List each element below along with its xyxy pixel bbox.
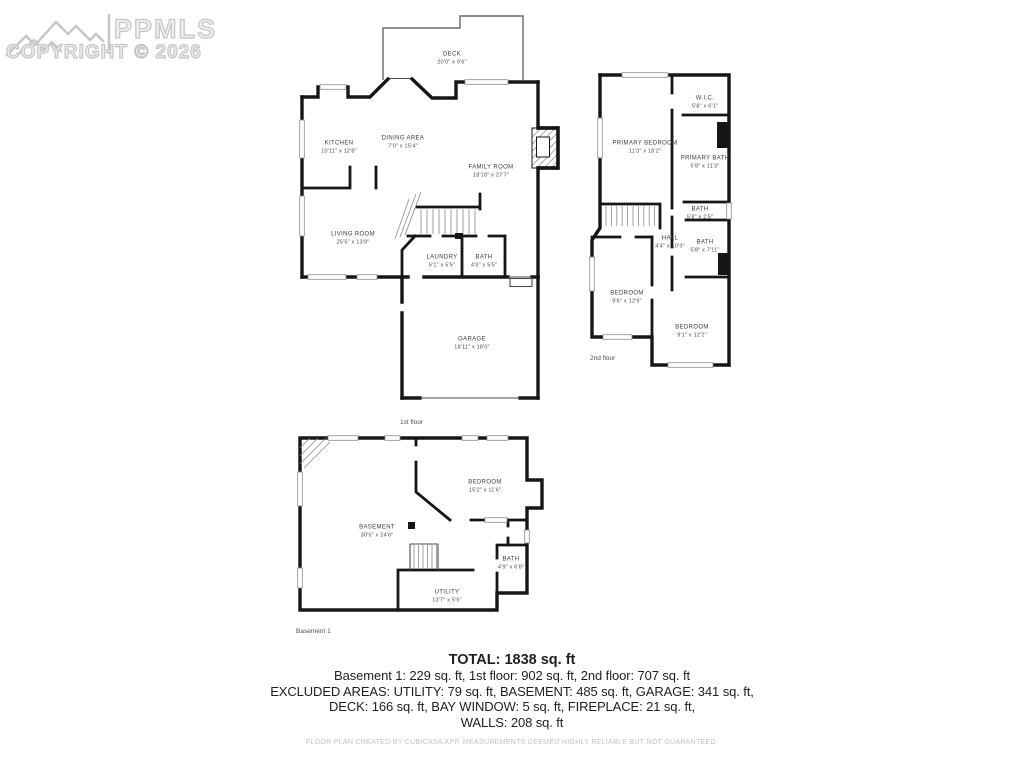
floor-areas-line: Basement 1: 229 sq. ft, 1st floor: 902 s… xyxy=(0,668,1024,684)
support-post xyxy=(408,522,415,529)
watermark-brand: PPMLS xyxy=(114,14,217,45)
basement-floor-plan xyxy=(290,430,550,645)
room-label-hall: HALL 4'4" x 10'3" xyxy=(655,235,685,249)
ppmls-watermark: PPMLS COPYRIGHT © 2026 xyxy=(4,4,234,66)
entry-stoop xyxy=(510,279,532,287)
room-label-kitchen: KITCHEN 10'11" x 12'8" xyxy=(321,140,357,154)
room-label-wic: W.I.C. 5'8" x 6'1" xyxy=(692,95,718,109)
room-label-living-room: LIVING ROOM 25'5" x 13'9" xyxy=(331,231,375,245)
room-label-utility: UTILITY 13'7" x 5'5" xyxy=(432,589,462,603)
room-label-bedroom-right: BEDROOM 9'1" x 12'2" xyxy=(675,324,708,338)
second-floor-plan xyxy=(580,60,750,380)
deck-outline xyxy=(383,16,523,80)
staircase xyxy=(606,206,655,226)
room-label-primary-bath: PRIMARY BATH 5'8" x 11'3" xyxy=(681,155,730,169)
excluded-areas-line-2: DECK: 166 sq. ft, BAY WINDOW: 5 sq. ft, … xyxy=(0,699,1024,715)
room-label-bath-small: BATH 5'8" x 2'5" xyxy=(687,206,713,220)
room-label-laundry: LAUNDRY 6'1" x 5'5" xyxy=(426,254,457,268)
room-label-basement-bath: BATH 4'9" x 6'8" xyxy=(498,556,524,570)
staircase xyxy=(395,192,475,239)
floor-plan-page: PPMLS COPYRIGHT © 2026 xyxy=(0,0,1024,767)
room-label-bath-first: BATH 4'9" x 5'5" xyxy=(471,254,497,268)
room-label-primary-bedroom: PRIMARY BEDROOM 11'3" x 18'2" xyxy=(612,140,677,154)
room-label-bath-second: BATH 5'8" x 7'11" xyxy=(690,239,719,253)
first-floor-tag: 1st floor xyxy=(400,419,423,426)
room-label-deck: DECK 20'0" x 9'6" xyxy=(437,51,467,65)
fireplace xyxy=(532,128,558,168)
total-area: TOTAL: 1838 sq. ft xyxy=(0,652,1024,668)
excluded-areas-line-1: EXCLUDED AREAS: UTILITY: 79 sq. ft, BASE… xyxy=(0,684,1024,700)
room-label-basement: BASEMENT 30'5" x 24'6" xyxy=(359,524,395,538)
staircase xyxy=(410,544,438,570)
room-label-garage: GARAGE 18'11" x 18'0" xyxy=(454,336,490,350)
under-stair-hatch xyxy=(300,438,330,468)
room-label-family-room: FAMILY ROOM 18'10" x 27'7" xyxy=(469,164,514,178)
watermark-copyright: COPYRIGHT © 2026 xyxy=(6,42,202,64)
room-label-bedroom-left: BEDROOM 9'6" x 12'9" xyxy=(610,290,643,304)
disclaimer: FLOOR PLAN CREATED BY CUBICASA APP. MEAS… xyxy=(0,739,1024,746)
room-label-dining-area: DINING AREA 7'0" x 15'4" xyxy=(382,135,425,149)
basement-floor-tag: Basement 1 xyxy=(296,628,331,635)
excluded-areas-line-3: WALLS: 208 sq. ft xyxy=(0,715,1024,731)
room-label-basement-bedroom: BEDROOM 15'2" x 11'6" xyxy=(468,479,501,493)
second-floor-tag: 2nd floor xyxy=(590,355,615,362)
first-floor-plan xyxy=(280,0,580,430)
area-summary: TOTAL: 1838 sq. ft Basement 1: 229 sq. f… xyxy=(0,652,1024,746)
windows-basement xyxy=(298,436,530,588)
